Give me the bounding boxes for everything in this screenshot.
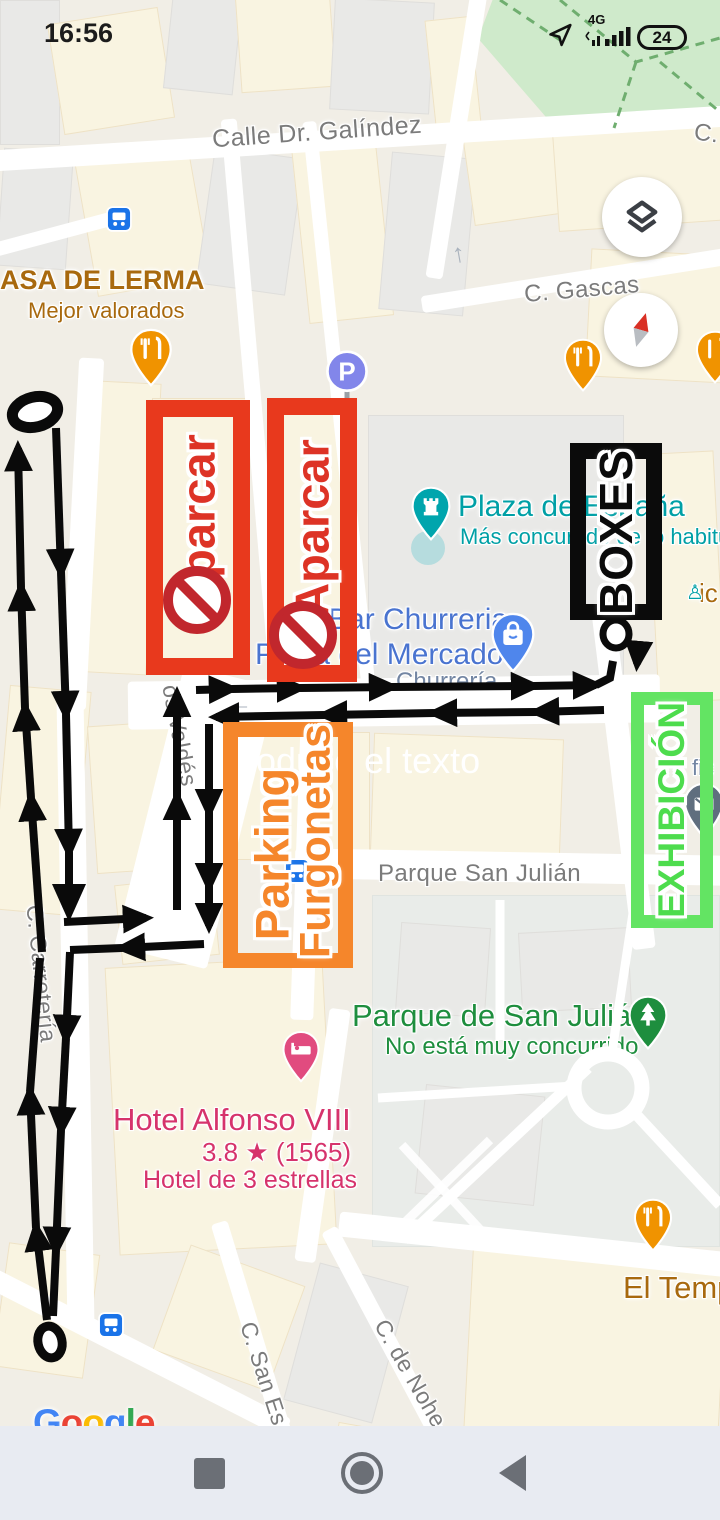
bus-stop-icon[interactable] [98, 1312, 124, 1338]
one-way-arrow-icon: ← [228, 690, 252, 718]
park-tree-pin-icon[interactable] [627, 995, 669, 1051]
street-label-carreteria: C. Carretería [20, 903, 61, 1043]
poi-label-el-templo[interactable]: El Temp [623, 1270, 720, 1306]
layers-icon [620, 195, 664, 239]
svg-text:P: P [338, 358, 355, 386]
signal-bars-icon [604, 24, 634, 48]
hotel-pin-icon[interactable] [281, 1028, 321, 1086]
poi-label-churreria-subtitle: Churrería [396, 668, 497, 696]
map-road [57, 700, 95, 1325]
street-label-parque-san-julian: Parque San Julián [378, 860, 581, 888]
map-building [415, 1084, 546, 1206]
shopping-pin-icon[interactable] [489, 612, 537, 674]
android-nav-bar [0, 1426, 720, 1520]
boxes-zone: BOXES [570, 443, 662, 620]
home-icon [350, 1461, 374, 1485]
bus-stop-icon[interactable] [106, 206, 132, 232]
exhibition-zone: EXHIBICIÓN [631, 692, 713, 928]
restaurant-pin-icon[interactable] [694, 330, 720, 385]
street-label-c: C. [692, 118, 720, 149]
poi-label-parque-subtitle: No está muy concurrido [385, 1033, 638, 1061]
no-parking-icon [268, 600, 338, 670]
clock: 16:56 [44, 18, 113, 49]
network-type-label: 4G [588, 12, 605, 27]
boxes-label: BOXES [589, 448, 643, 614]
map-road [128, 674, 661, 729]
poi-label-hotel-rating: 3.8 ★ (1565) [202, 1137, 351, 1168]
restaurant-pin-icon[interactable] [128, 328, 174, 388]
compass-button[interactable] [604, 293, 678, 367]
restaurant-pin-icon[interactable] [562, 338, 604, 393]
status-bar: 16:56 4G 24 [0, 0, 720, 60]
parking-label-line2: Furgonetas [292, 724, 341, 958]
poi-label-hotel-subtitle: Hotel de 3 estrellas [143, 1166, 357, 1195]
recents-button[interactable] [194, 1458, 225, 1489]
back-button[interactable] [499, 1455, 526, 1491]
map-layers-button[interactable] [602, 177, 682, 257]
battery-icon: 24 [637, 25, 687, 50]
poi-icon-ic-glyph: ♙ [686, 580, 704, 605]
route-endpoint-ring [9, 392, 61, 432]
parking-poi-icon[interactable]: P [324, 350, 370, 402]
compass-icon [619, 308, 663, 352]
poi-label-parque-san-julian[interactable]: Parque de San Julián [352, 998, 648, 1034]
location-active-icon [547, 21, 575, 49]
aparcar-label: Aparcar [285, 439, 340, 617]
van-parking-zone: Parking Furgonetas [223, 722, 353, 968]
home-button[interactable] [341, 1452, 383, 1494]
poi-label-casa-de-lerma[interactable]: ASA DE LERMA [0, 265, 205, 296]
maps-screenshot[interactable]: ↑ ← Calle Dr. Galíndez C. C. Gascas C. C… [0, 0, 720, 1520]
restaurant-pin-icon[interactable] [632, 1198, 674, 1253]
poi-label-hotel-alfonso[interactable]: Hotel Alfonso VIII [113, 1102, 351, 1138]
signal-small-icon [584, 28, 606, 48]
poi-label-lerma-subtitle: Mejor valorados [28, 298, 185, 324]
no-parking-icon [162, 565, 232, 635]
battery-percent: 24 [653, 28, 672, 48]
exhibicion-label: EXHIBICIÓN [651, 702, 693, 918]
plaza-espana-pin-icon[interactable] [410, 486, 452, 542]
